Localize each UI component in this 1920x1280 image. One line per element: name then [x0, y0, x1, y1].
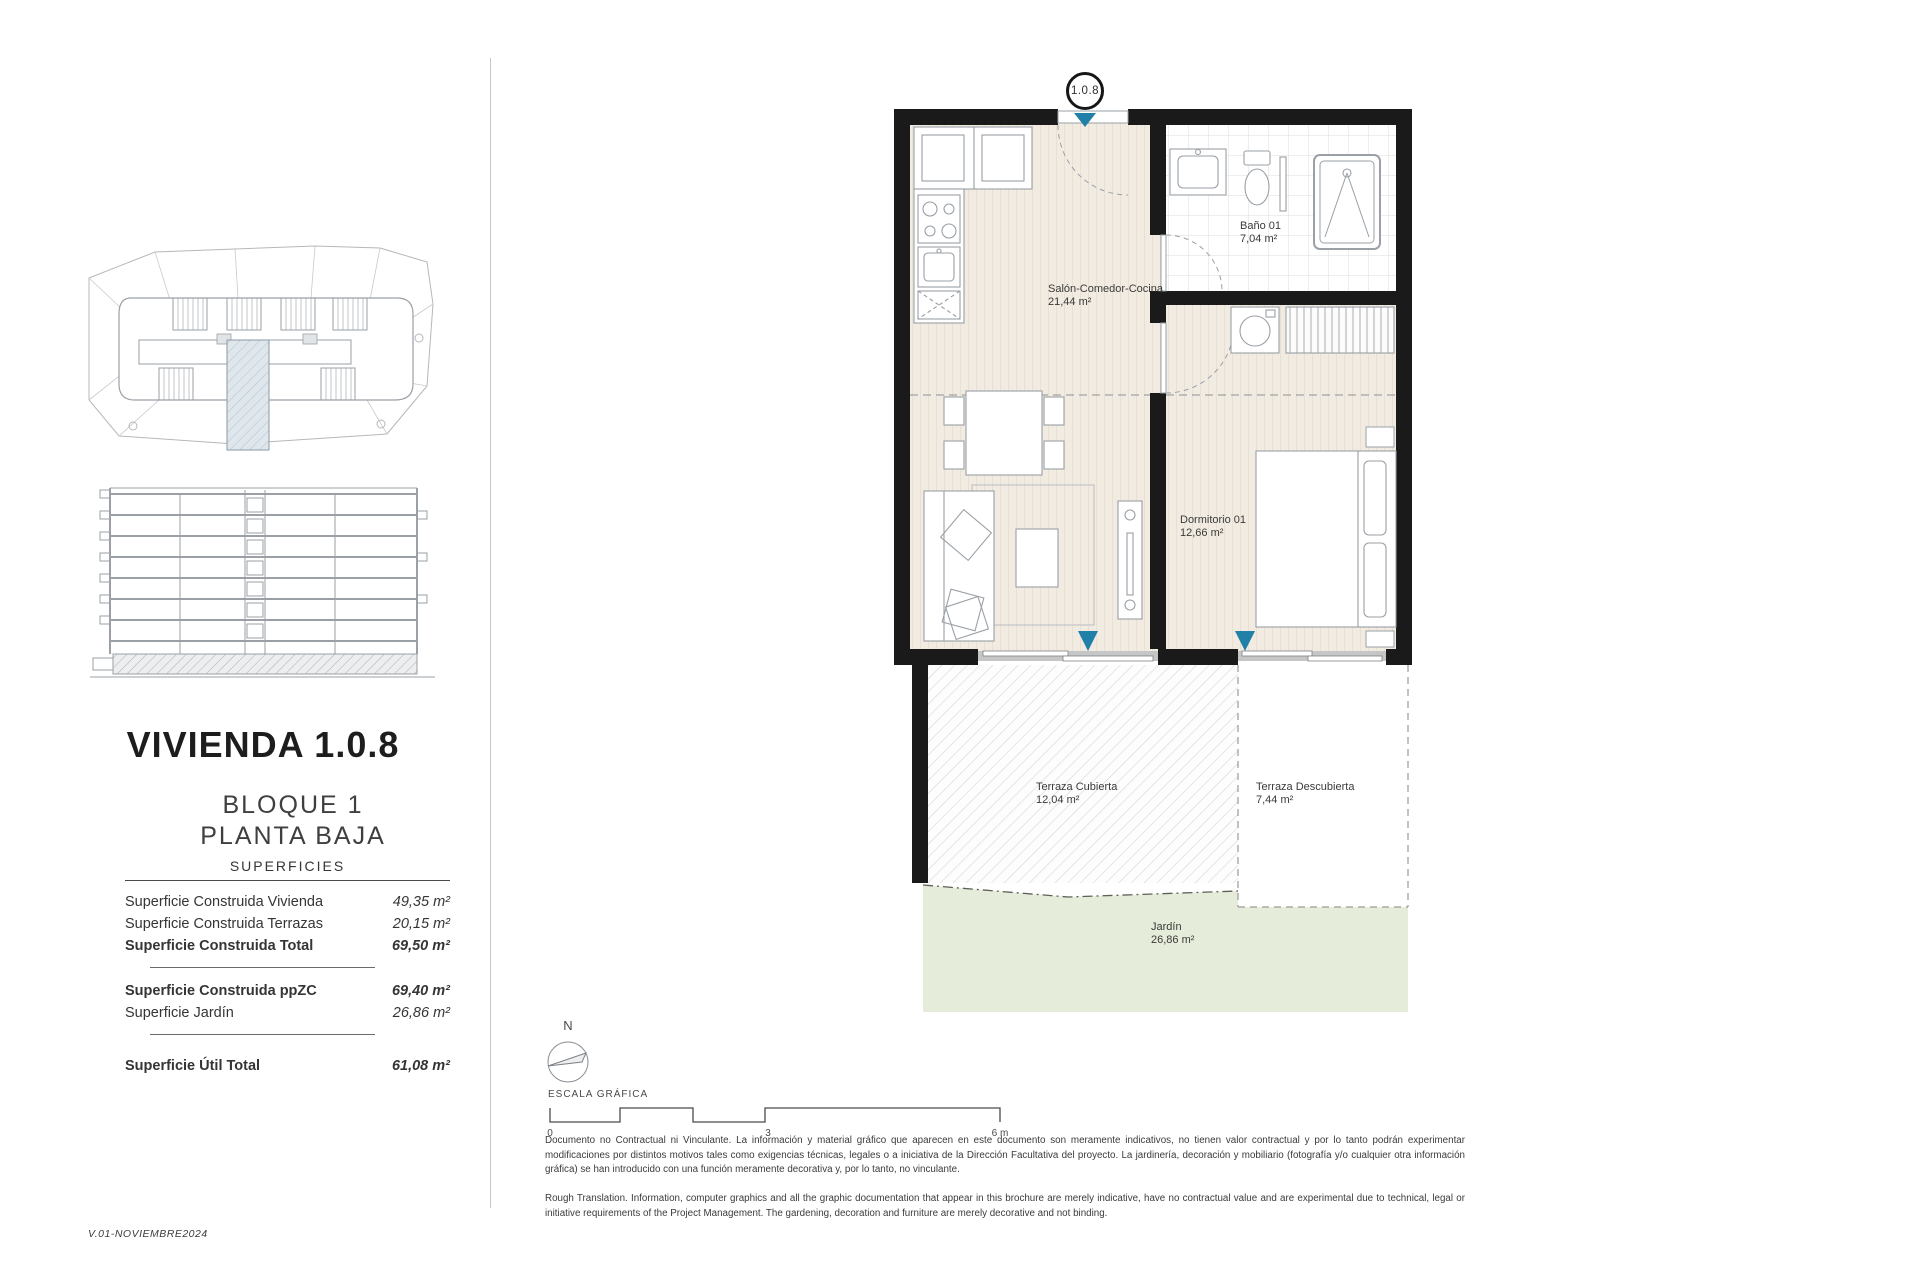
highlighted-unit-location [227, 340, 269, 450]
surface-value: 26,86 m² [393, 1004, 450, 1022]
disclaimer-spanish: Documento no Contractual ni Vinculante. … [545, 1134, 1465, 1178]
washing-machine [1231, 307, 1279, 353]
table-rule [150, 1034, 375, 1035]
svg-text:Terraza Cubierta: Terraza Cubierta [1036, 781, 1118, 793]
surface-label: Superficie Útil Total [125, 1057, 260, 1075]
north-label: N [563, 1018, 572, 1033]
graphic-scale-bar [550, 1108, 1000, 1122]
covered-terrace-floor [928, 665, 1238, 883]
tv-unit [1118, 501, 1142, 619]
floor-label: PLANTA BAJA [93, 821, 493, 852]
surface-value: 61,08 m² [392, 1057, 450, 1075]
bedroom-slider-door [1238, 651, 1386, 661]
table-row: Superficie Construida ppZC 69,40 m² [125, 980, 450, 1002]
surface-label: Superficie Construida ppZC [125, 982, 317, 1000]
room-label-bano: Baño 01 7,04 m² [1240, 220, 1281, 245]
svg-text:12,04 m²: 12,04 m² [1036, 794, 1080, 806]
surface-label: Superficie Jardín [125, 1004, 234, 1022]
svg-text:Dormitorio 01: Dormitorio 01 [1180, 514, 1246, 526]
disclaimer-english: Rough Translation. Information, computer… [545, 1192, 1465, 1221]
table-row: Superficie Construida Terrazas 20,15 m² [125, 913, 450, 935]
unit-marker: 1.0.8 [1066, 72, 1104, 110]
sheet-divider [490, 58, 491, 1208]
building-elevation [85, 478, 440, 683]
svg-text:7,44 m²: 7,44 m² [1256, 794, 1294, 806]
surface-value: 69,40 m² [392, 982, 450, 1000]
towel-rail [1280, 157, 1286, 211]
floorplan-sheet: VIVIENDA 1.0.8 BLOQUE 1 PLANTA BAJA SUPE… [0, 0, 1920, 1280]
svg-text:12,66 m²: 12,66 m² [1180, 527, 1224, 539]
nightstand [1366, 427, 1394, 447]
compass-icon [548, 1042, 588, 1082]
nightstand [1366, 631, 1394, 647]
living-slider-door [978, 651, 1158, 661]
coffee-table [1016, 529, 1058, 587]
version-label: V.01-NOVIEMBRE2024 [88, 1228, 208, 1240]
floor-plan: Salón-Comedor-Cocina 21,44 m² Baño 01 7,… [888, 95, 1418, 1020]
table-rule [125, 880, 450, 881]
surface-value: 69,50 m² [392, 937, 450, 955]
svg-text:7,04 m²: 7,04 m² [1240, 233, 1278, 245]
page-title: VIVIENDA 1.0.8 [63, 724, 463, 766]
surface-label: Superficie Construida Vivienda [125, 893, 323, 911]
bathroom-sink [1170, 149, 1226, 195]
scale-caption: ESCALA GRÁFICA [548, 1087, 648, 1100]
surface-label: Superficie Construida Terrazas [125, 915, 323, 933]
surface-value: 49,35 m² [393, 893, 450, 911]
bedroom-door-leaf [1161, 323, 1166, 393]
svg-text:26,86 m²: 26,86 m² [1151, 934, 1195, 946]
wardrobe [1286, 307, 1394, 353]
table-row: Superficie Jardín 26,86 m² [125, 1002, 450, 1024]
toilet [1244, 151, 1270, 205]
surfaces-table: SUPERFICIES Superficie Construida Vivien… [125, 858, 450, 1077]
svg-text:Terraza Descubierta: Terraza Descubierta [1256, 781, 1355, 793]
block-label: BLOQUE 1 [93, 790, 493, 821]
surfaces-header: SUPERFICIES [125, 858, 450, 880]
elevation-columns [110, 488, 417, 654]
sofa [924, 491, 994, 641]
table-rule [150, 967, 375, 968]
entry-arrow-icon [1074, 113, 1096, 127]
legend-block: N ESCALA GRÁFICA 0 3 6 m [540, 1000, 1020, 1140]
svg-text:21,44 m²: 21,44 m² [1048, 296, 1092, 308]
site-key-plan [75, 238, 445, 473]
svg-text:Salón-Comedor-Cocina: Salón-Comedor-Cocina [1048, 283, 1164, 295]
surface-label: Superficie Construida Total [125, 937, 313, 955]
table-row: Superficie Útil Total 61,08 m² [125, 1055, 450, 1077]
svg-text:Baño 01: Baño 01 [1240, 220, 1281, 232]
block-floor-subtitle: BLOQUE 1 PLANTA BAJA [93, 790, 493, 852]
shower [1314, 155, 1380, 249]
table-row: Superficie Construida Vivienda 49,35 m² [125, 891, 450, 913]
svg-text:Jardín: Jardín [1151, 921, 1182, 933]
bed [1256, 451, 1396, 627]
table-row: Superficie Construida Total 69,50 m² [125, 935, 450, 957]
surface-value: 20,15 m² [393, 915, 450, 933]
ground-plinth [113, 654, 417, 674]
